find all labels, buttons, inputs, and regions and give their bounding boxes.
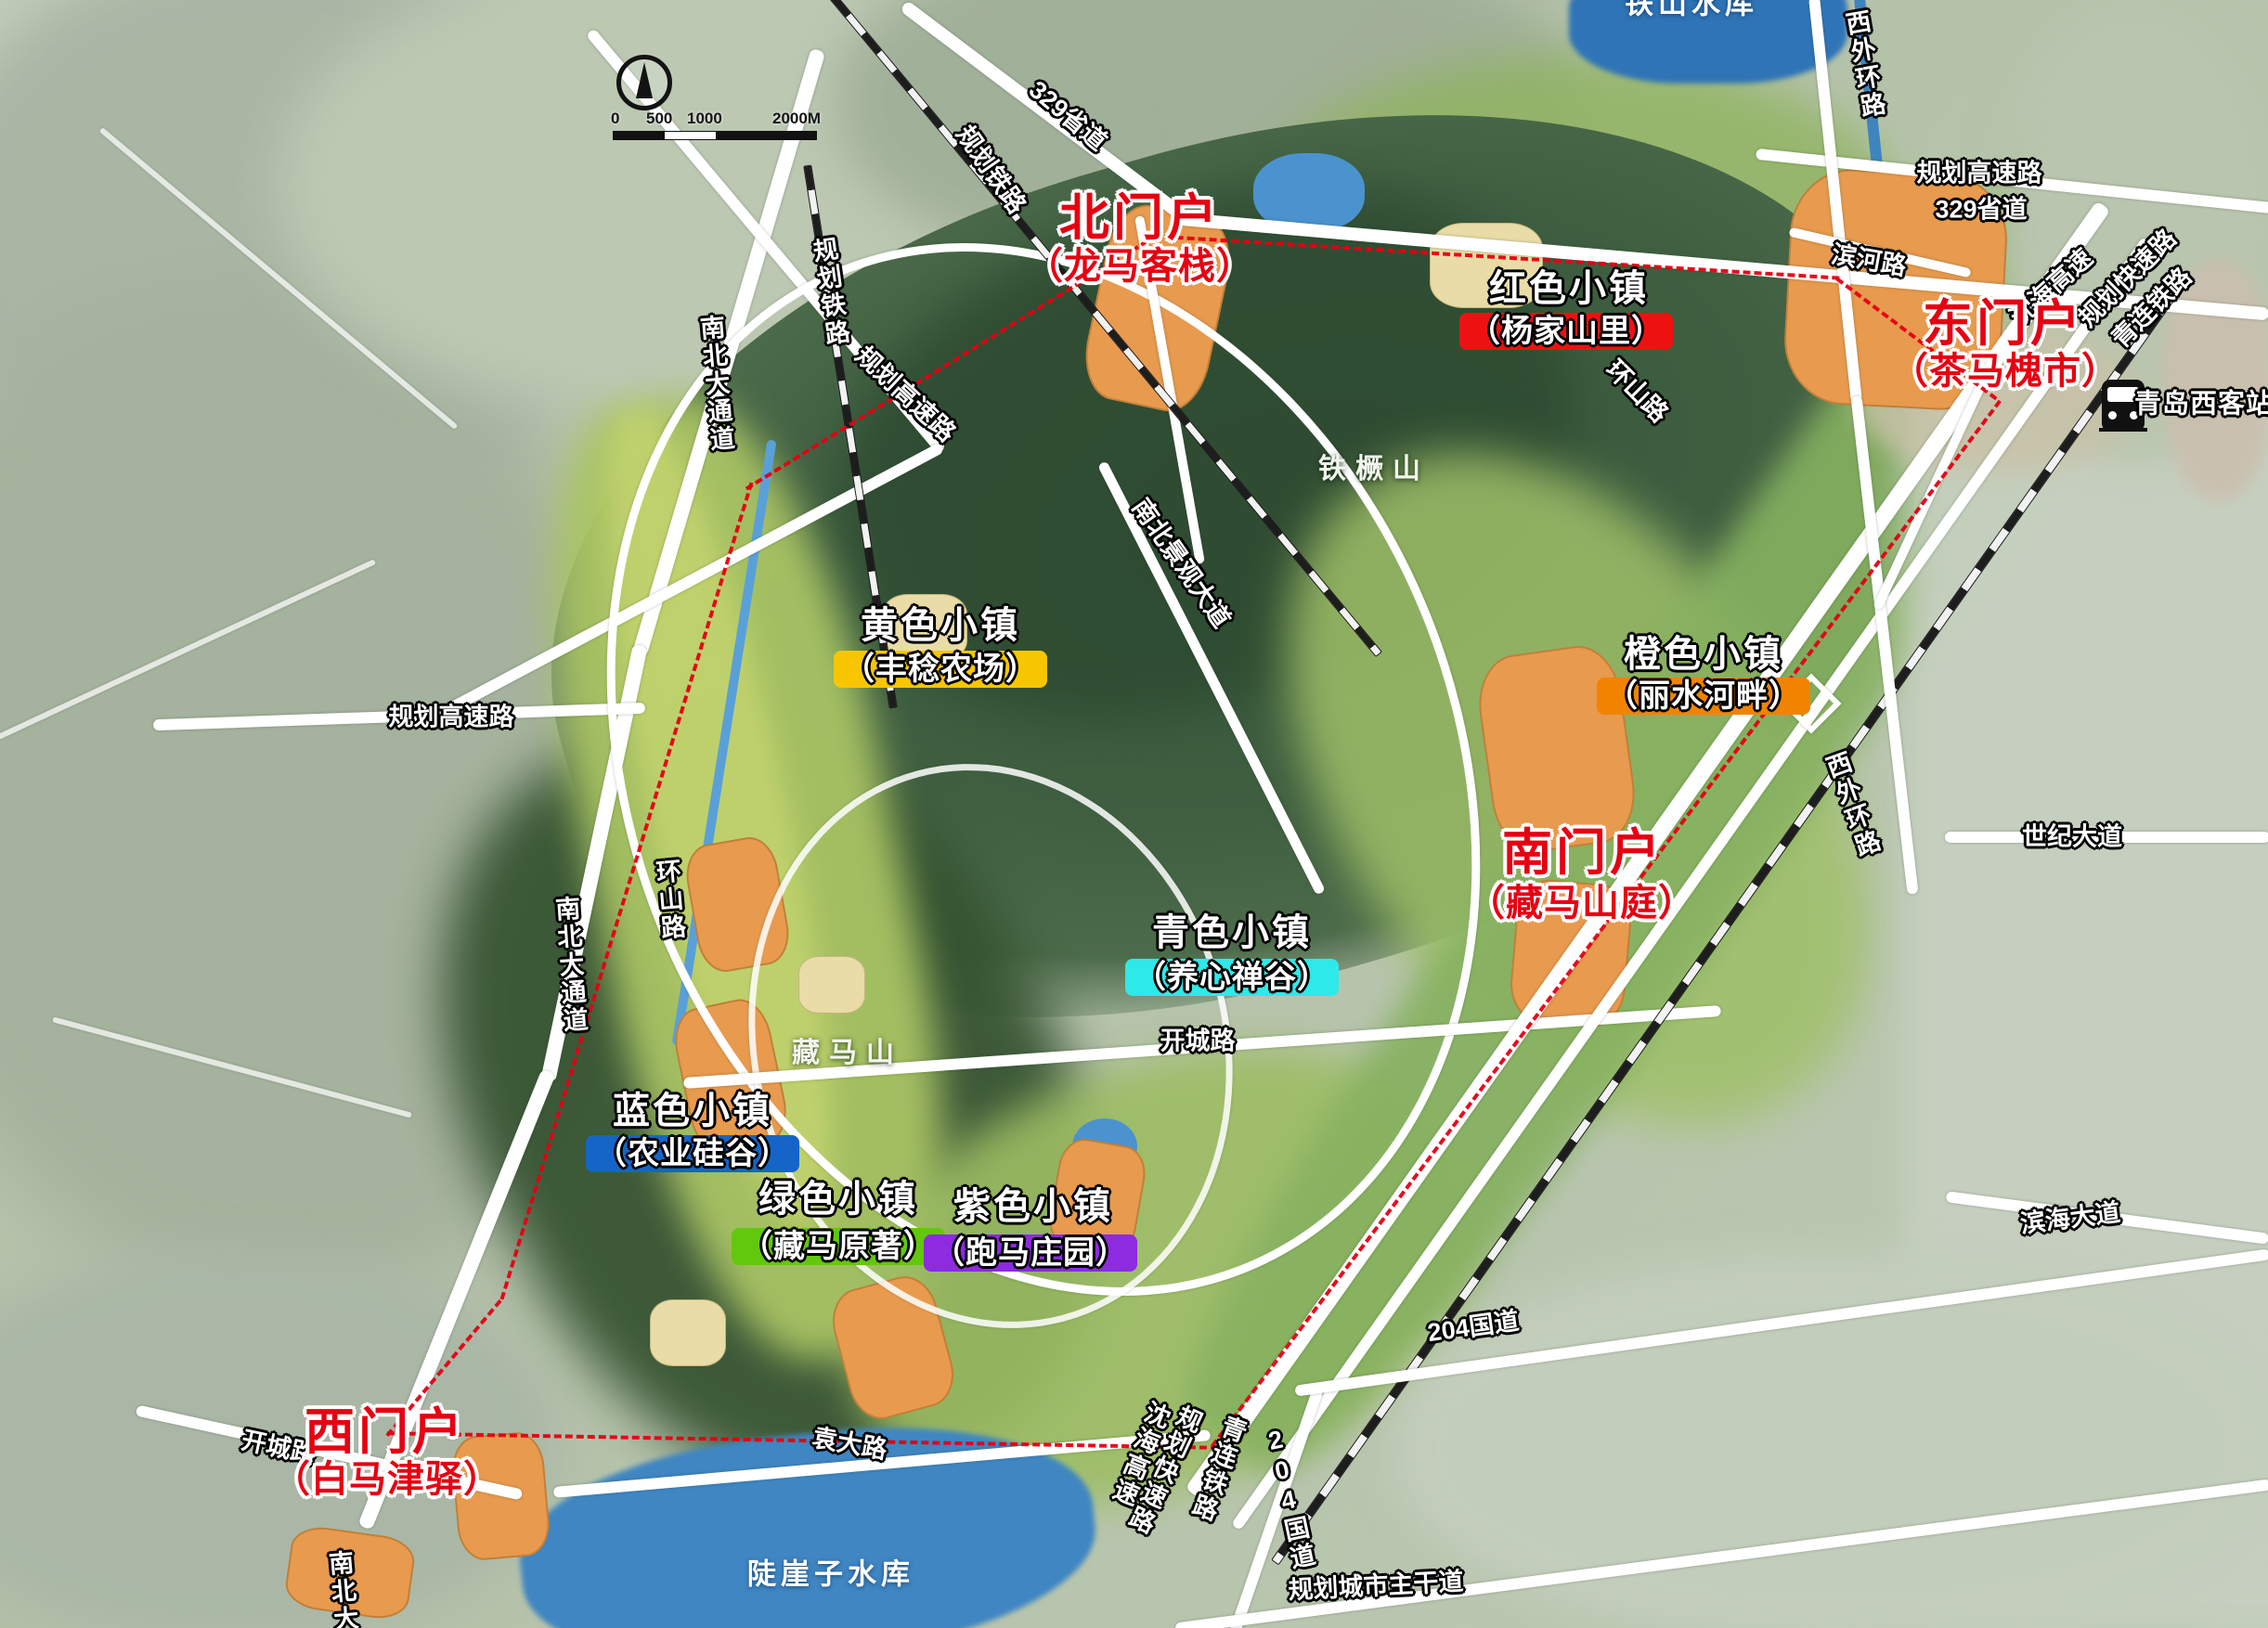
scale-segment — [717, 132, 816, 139]
gate-north-title: 北门户 — [1059, 193, 1221, 243]
gate-south-subtitle: （藏马山庭） — [1468, 885, 1696, 922]
gate-north-subtitle: （龙马客栈） — [1026, 248, 1254, 285]
mountain-label-tiejueshan: 铁橛山 — [1318, 456, 1430, 484]
town-yellow-badge: （丰稔农场） — [834, 651, 1047, 688]
road-label-xiwaihuan-top: 西外环路 — [1841, 8, 1885, 123]
town-blue-badge: （农业硅谷） — [586, 1135, 799, 1172]
scale-tick: 1000 — [687, 110, 722, 128]
patch-cream-4 — [650, 1299, 726, 1366]
town-yellow-title: 黄色小镇 — [861, 607, 1020, 644]
water-label-tieshan: 铁山水库 — [1625, 0, 1758, 19]
north-arrow-icon — [616, 55, 672, 110]
road-label-shiji: 世纪大道 — [2022, 825, 2122, 850]
town-green-badge: （藏马原著） — [732, 1228, 945, 1265]
scale-tick: 0 — [611, 110, 619, 128]
water-label-douyazi: 陡崖子水库 — [747, 1560, 914, 1589]
station-label: 青岛西客站 — [2134, 392, 2268, 419]
gate-west-title: 西门户 — [305, 1407, 466, 1457]
town-cyan-title: 青色小镇 — [1152, 914, 1312, 951]
town-purple-badge: （跑马庄园） — [924, 1234, 1137, 1272]
road-label-329-right: 329省道 — [1935, 198, 2027, 223]
town-red-title: 红色小镇 — [1489, 270, 1649, 307]
town-red-badge: （杨家山里） — [1459, 313, 1673, 350]
map-canvas: 0 500 1000 2000M 329省道 规划铁路 规划铁路 规划高速路 南… — [0, 0, 2268, 1628]
town-green-title: 绿色小镇 — [758, 1181, 918, 1218]
scale-bar-segments — [613, 131, 817, 140]
town-blue-title: 蓝色小镇 — [613, 1092, 772, 1130]
gate-east-title: 东门户 — [1923, 299, 2084, 349]
train-base — [2099, 428, 2147, 432]
scale-bar: 0 500 1000 2000M — [611, 110, 821, 145]
scale-tick: 2000M — [772, 110, 821, 128]
train-light — [2108, 411, 2117, 420]
scale-segment — [664, 132, 717, 139]
compass-needle — [636, 62, 653, 98]
town-purple-title: 紫色小镇 — [953, 1188, 1113, 1225]
town-orange-badge: （丽水河畔） — [1597, 678, 1810, 715]
gate-south-title: 南门户 — [1502, 828, 1664, 878]
road-label-huanshan-left: 环山路 — [653, 858, 685, 943]
mountain-label-zangmashan: 藏马山 — [792, 1040, 903, 1067]
scale-segment — [614, 132, 664, 139]
road-label-kaicheng: 开城路 — [1160, 1029, 1236, 1054]
scale-tick: 500 — [646, 110, 672, 128]
road-label-planned-hwy-right: 规划高速路 — [1917, 162, 2042, 187]
town-cyan-badge: （养心禅谷） — [1125, 959, 1339, 996]
gate-east-subtitle: （茶马槐市） — [1891, 353, 2119, 390]
gate-west-subtitle: （白马津驿） — [273, 1461, 501, 1498]
town-orange-title: 橙色小镇 — [1624, 636, 1783, 673]
road-label-planned-hwy-left: 规划高速路 — [389, 705, 514, 730]
